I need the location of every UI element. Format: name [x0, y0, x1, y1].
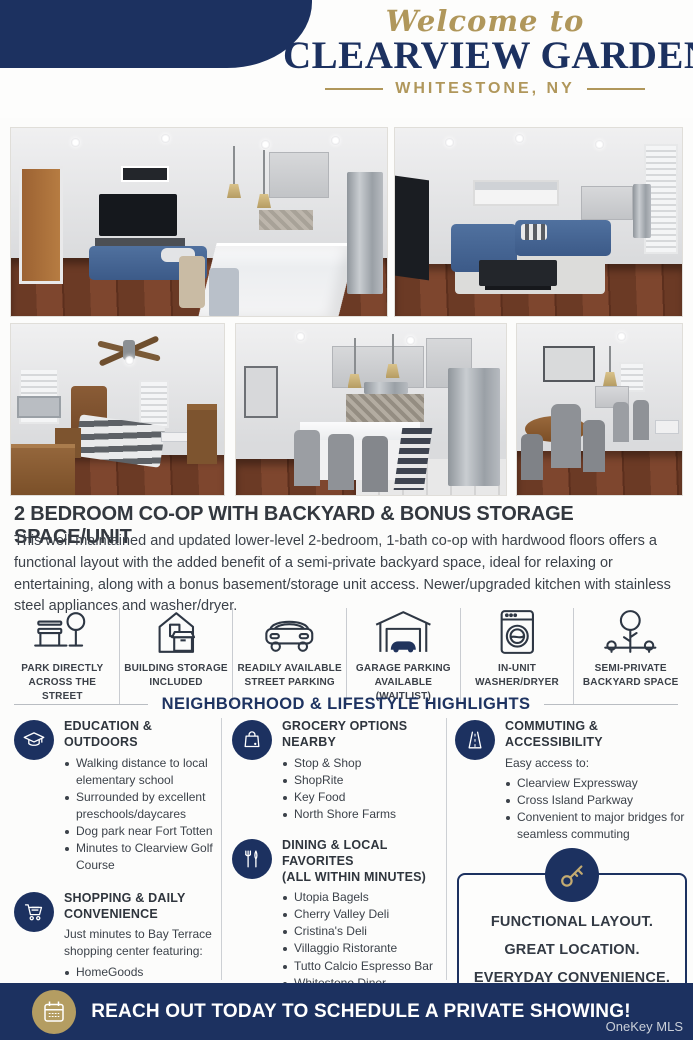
bullet-item: Minutes to Clearview Golf Course [64, 840, 213, 874]
highlight-body: EDUCATION & OUTDOORS Walking distance to… [64, 718, 213, 874]
ceiling-light [595, 140, 604, 149]
ceiling-light [406, 336, 415, 345]
bullet-item: Cristina's Deli [282, 923, 438, 940]
bullet-item: Walking distance to local elementary sch… [64, 755, 213, 789]
range-hood [364, 382, 408, 394]
footer-content: REACH OUT TODAY TO SCHEDULE A PRIVATE SH… [0, 983, 693, 1040]
garage-icon [372, 608, 435, 656]
highlight-title: EDUCATION & OUTDOORS [64, 718, 213, 751]
bar-stool [179, 256, 205, 308]
coffee-table [479, 260, 557, 286]
washer-icon [486, 608, 549, 656]
refrigerator [633, 184, 651, 238]
car-icon [258, 608, 321, 656]
header: Welcome to CLEARVIEW GARDENS WHITESTONE,… [0, 0, 693, 118]
highlight-intro: Easy access to: [505, 755, 685, 772]
section-title: NEIGHBORHOOD & LIFESTYLE HIGHLIGHTS [162, 695, 531, 714]
bullet-item: HomeGoods [64, 964, 213, 981]
bar-stool [362, 436, 388, 492]
highlight-commuting: COMMUTING & ACCESSIBILITY Easy access to… [455, 718, 685, 843]
refrigerator [347, 172, 383, 294]
bar-stool [209, 268, 239, 317]
feature-garage-parking: GARAGE PARKING AVAILABLE (WAITLIST) [347, 608, 461, 704]
community-title: CLEARVIEW GARDENS [283, 36, 687, 77]
photo-living-room-kitchen [10, 127, 388, 317]
cta-text: REACH OUT TODAY TO SCHEDULE A PRIVATE SH… [91, 1001, 630, 1023]
armoire [187, 404, 217, 464]
fan-light [125, 356, 134, 365]
feature-street-parking: READILY AVAILABLE STREET PARKING [233, 608, 347, 704]
flyer-page: Welcome to CLEARVIEW GARDENS WHITESTONE,… [0, 0, 693, 1040]
photo-living-room-sectional [394, 127, 683, 317]
photo-dining-area [516, 323, 683, 496]
bullet-item: Villaggio Ristorante [282, 940, 438, 957]
bar-stool [328, 434, 354, 490]
highlight-education: EDUCATION & OUTDOORS Walking distance to… [14, 718, 213, 874]
ac-unit [17, 396, 61, 418]
calendar-icon [32, 990, 76, 1034]
feature-storage: BUILDING STORAGE INCLUDED [120, 608, 234, 704]
bullet-list: Clearview Expressway Cross Island Parkwa… [505, 775, 685, 843]
tv [395, 176, 429, 281]
mls-watermark: OneKey MLS [606, 1019, 683, 1034]
highlight-grocery: GROCERY OPTIONS NEARBY Stop & Shop ShopR… [232, 718, 438, 823]
ceiling-light [261, 140, 270, 149]
ceiling-light [445, 138, 454, 147]
bullet-item: ShopRite [282, 772, 438, 789]
wall-rack [244, 366, 278, 418]
bullet-item: Surrounded by excellent preschools/dayca… [64, 789, 213, 823]
footer-bar: REACH OUT TODAY TO SCHEDULE A PRIVATE SH… [0, 983, 693, 1040]
bullet-item: Stop & Shop [282, 755, 438, 772]
features-row: PARK DIRECTLY ACROSS THE STREET BUILDING… [6, 608, 687, 704]
bullet-item: Utopia Bagels [282, 889, 438, 906]
feature-label: SEMI-PRIVATE BACKYARD SPACE [577, 662, 684, 690]
photo-row-1 [10, 127, 683, 317]
feature-park: PARK DIRECTLY ACROSS THE STREET [6, 608, 120, 704]
highlights-columns: EDUCATION & OUTDOORS Walking distance to… [0, 718, 693, 980]
callout-line-1: FUNCTIONAL LAYOUT. [467, 909, 677, 937]
bullet-item: Convenient to major bridges for seamless… [505, 809, 685, 843]
pendant-light [233, 146, 235, 184]
road-icon [455, 720, 495, 760]
graduation-cap-icon [14, 720, 54, 760]
welcome-script: Welcome to [283, 6, 687, 36]
kitchen-back [581, 186, 633, 220]
refrigerator [448, 368, 500, 486]
shopping-cart-icon [14, 892, 54, 932]
bullet-item: Clearview Expressway [505, 775, 685, 792]
bullet-item: Dog park near Fort Totten [64, 823, 213, 840]
ceiling-light [161, 134, 170, 143]
highlight-body: GROCERY OPTIONS NEARBY Stop & Shop ShopR… [282, 718, 438, 823]
bar-stool [294, 430, 320, 486]
backsplash [259, 210, 313, 230]
highlight-body: COMMUTING & ACCESSIBILITY Easy access to… [505, 718, 685, 843]
highlight-title: COMMUTING & ACCESSIBILITY [505, 718, 685, 751]
bar-stool [613, 402, 629, 442]
ceiling-light [71, 138, 80, 147]
photo-kitchen [235, 323, 507, 496]
highlight-dining: DINING & LOCAL FAVORITES (ALL WITHIN MIN… [232, 837, 438, 992]
key-icon [545, 848, 599, 902]
photo-row-2 [10, 323, 683, 496]
gold-rule-left [325, 88, 383, 90]
utensils-icon [232, 839, 272, 879]
wall-art [121, 166, 169, 182]
ceiling-light [296, 332, 305, 341]
location-row: WHITESTONE, NY [283, 80, 687, 98]
header-text: Welcome to CLEARVIEW GARDENS WHITESTONE,… [283, 6, 687, 98]
navy-corner-shape [0, 0, 312, 68]
column-left: EDUCATION & OUTDOORS Walking distance to… [0, 718, 222, 980]
highlight-title: DINING & LOCAL FAVORITES [282, 837, 438, 870]
dining-chair [551, 404, 581, 468]
location-label: WHITESTONE, NY [395, 80, 575, 98]
feature-label: READILY AVAILABLE STREET PARKING [236, 662, 343, 690]
dining-chair [583, 420, 605, 472]
pendant-light [263, 150, 265, 194]
radiator [655, 420, 679, 434]
callout-line-2: GREAT LOCATION. [467, 937, 677, 965]
highlight-intro: Just minutes to Bay Terrace shopping cen… [64, 926, 213, 960]
feature-label: IN-UNIT WASHER/DRYER [464, 662, 571, 690]
upper-cabinets [269, 152, 329, 198]
backyard-tree-icon [599, 608, 662, 656]
bar-stool [633, 400, 649, 440]
wine-rack-art [543, 346, 595, 382]
section-title-row: NEIGHBORHOOD & LIFESTYLE HIGHLIGHTS [14, 695, 678, 714]
wood-door [19, 166, 63, 284]
tv [99, 194, 177, 236]
building-storage-icon [145, 608, 208, 656]
highlight-subtitle: (ALL WITHIN MINUTES) [282, 869, 438, 885]
backsplash [346, 394, 424, 422]
pendant-light [609, 346, 611, 372]
feature-label: BUILDING STORAGE INCLUDED [123, 662, 230, 690]
column-right: COMMUTING & ACCESSIBILITY Easy access to… [447, 718, 693, 980]
feature-washer-dryer: IN-UNIT WASHER/DRYER [461, 608, 575, 704]
bullet-list: Stop & Shop ShopRite Key Food North Shor… [282, 755, 438, 823]
pendant-light [392, 334, 394, 364]
ceiling-light [617, 332, 626, 341]
gold-rule-right [587, 88, 645, 90]
bullet-item: Cherry Valley Deli [282, 906, 438, 923]
wall-art [473, 180, 559, 206]
park-bench-tree-icon [31, 608, 94, 656]
feature-backyard: SEMI-PRIVATE BACKYARD SPACE [574, 608, 687, 704]
photo-bedroom [10, 323, 225, 496]
dresser [11, 444, 75, 496]
dining-chair [521, 434, 543, 480]
listing-description: This well-maintained and updated lower-l… [14, 531, 678, 618]
bullet-item: Tutto Calcio Espresso Bar [282, 958, 438, 975]
window-right [139, 380, 169, 428]
highlight-body: DINING & LOCAL FAVORITES (ALL WITHIN MIN… [282, 837, 438, 992]
highlight-title: SHOPPING & DAILY CONVENIENCE [64, 890, 213, 923]
column-middle: GROCERY OPTIONS NEARBY Stop & Shop ShopR… [222, 718, 447, 980]
bullet-item: Key Food [282, 789, 438, 806]
bullet-list: Utopia Bagels Cherry Valley Deli Cristin… [282, 889, 438, 991]
photo-collage [10, 127, 683, 496]
ceiling-light [331, 136, 340, 145]
shopping-bag-icon [232, 720, 272, 760]
highlight-title: GROCERY OPTIONS NEARBY [282, 718, 438, 751]
pendant-light [354, 338, 356, 374]
bullet-list: Walking distance to local elementary sch… [64, 755, 213, 874]
bullet-item: Cross Island Parkway [505, 792, 685, 809]
ceiling-light [515, 134, 524, 143]
bullet-item: North Shore Farms [282, 806, 438, 823]
striped-pillow [521, 224, 547, 240]
